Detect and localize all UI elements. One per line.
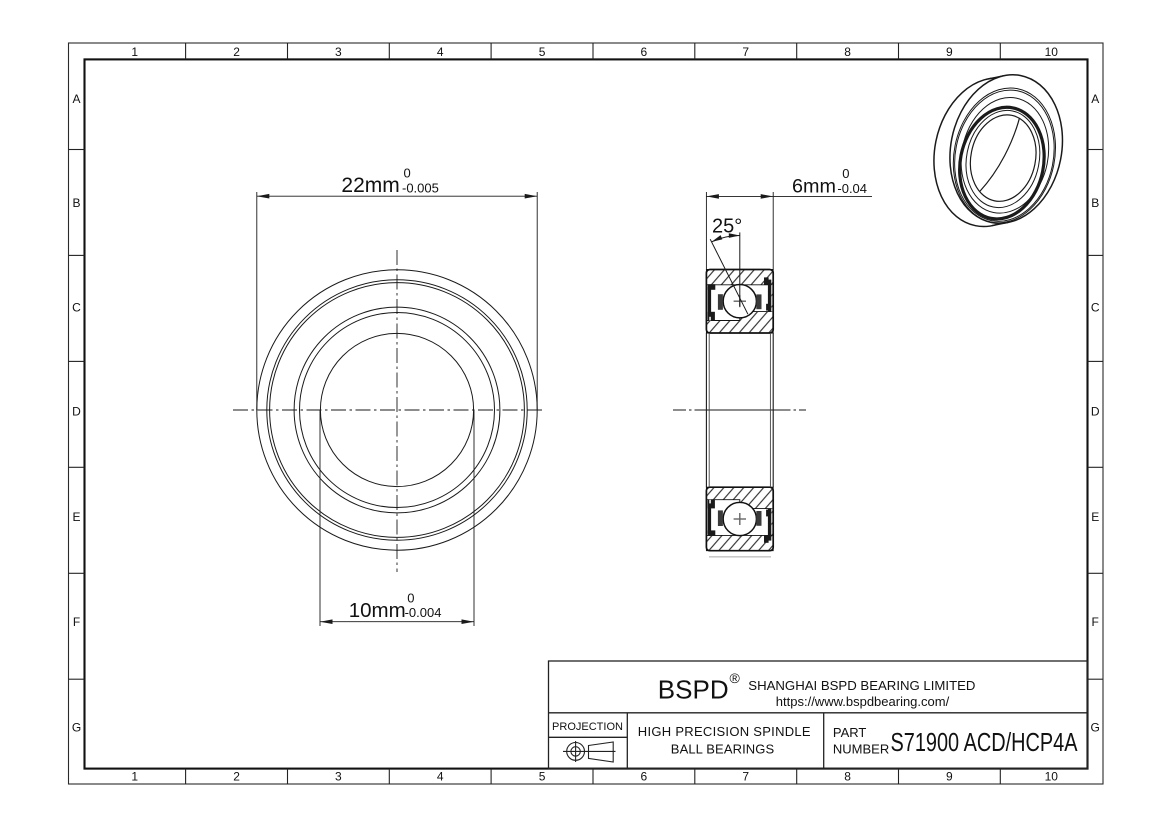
svg-text:7: 7 xyxy=(742,45,749,59)
svg-text:BSPD: BSPD xyxy=(658,675,729,705)
svg-text:9: 9 xyxy=(946,45,953,59)
svg-text:2: 2 xyxy=(233,770,240,784)
svg-text:25°: 25° xyxy=(712,216,742,238)
svg-text:NUMBER: NUMBER xyxy=(833,742,889,757)
svg-text:8: 8 xyxy=(844,770,851,784)
svg-text:SHANGHAI BSPD BEARING LIMITED: SHANGHAI BSPD BEARING LIMITED xyxy=(748,678,975,693)
svg-text:9: 9 xyxy=(946,770,953,784)
svg-text:-0.005: -0.005 xyxy=(402,181,439,196)
svg-text:C: C xyxy=(1091,300,1100,314)
svg-text:G: G xyxy=(1091,721,1100,735)
svg-text:0: 0 xyxy=(842,166,849,181)
svg-text:F: F xyxy=(73,615,80,629)
svg-text:5: 5 xyxy=(539,45,546,59)
svg-text:D: D xyxy=(1091,405,1100,419)
svg-text:https://www.bspdbearing.com/: https://www.bspdbearing.com/ xyxy=(776,694,950,709)
svg-text:8: 8 xyxy=(844,45,851,59)
svg-text:E: E xyxy=(72,510,80,524)
svg-text:S71900 ACD/HCP4A: S71900 ACD/HCP4A xyxy=(891,727,1079,757)
svg-text:4: 4 xyxy=(437,45,444,59)
svg-text:0: 0 xyxy=(407,591,414,606)
svg-text:-0.04: -0.04 xyxy=(837,181,867,196)
svg-text:1: 1 xyxy=(131,45,138,59)
svg-text:22mm: 22mm xyxy=(341,174,399,197)
svg-text:G: G xyxy=(72,721,81,735)
svg-text:0: 0 xyxy=(404,166,411,181)
svg-text:C: C xyxy=(72,300,81,314)
svg-text:10mm: 10mm xyxy=(349,599,406,622)
svg-text:6mm: 6mm xyxy=(792,176,836,198)
svg-text:F: F xyxy=(1092,615,1099,629)
svg-text:PROJECTION: PROJECTION xyxy=(552,721,623,733)
svg-text:BALL BEARINGS: BALL BEARINGS xyxy=(671,742,775,757)
svg-text:B: B xyxy=(1091,196,1099,210)
svg-text:4: 4 xyxy=(437,770,444,784)
svg-text:B: B xyxy=(72,196,80,210)
svg-text:1: 1 xyxy=(131,770,138,784)
svg-text:5: 5 xyxy=(539,770,546,784)
svg-text:6: 6 xyxy=(641,45,648,59)
svg-text:®: ® xyxy=(730,670,741,686)
svg-text:7: 7 xyxy=(742,770,749,784)
svg-text:6: 6 xyxy=(641,770,648,784)
svg-text:2: 2 xyxy=(233,45,240,59)
svg-text:A: A xyxy=(1091,92,1099,106)
svg-text:D: D xyxy=(72,405,81,419)
svg-text:PART: PART xyxy=(833,725,867,740)
svg-text:E: E xyxy=(1091,510,1099,524)
svg-text:HIGH PRECISION SPINDLE: HIGH PRECISION SPINDLE xyxy=(638,724,811,739)
svg-text:10: 10 xyxy=(1045,770,1059,784)
svg-text:10: 10 xyxy=(1045,45,1059,59)
svg-text:A: A xyxy=(72,92,80,106)
svg-text:-0.004: -0.004 xyxy=(405,605,442,620)
svg-text:3: 3 xyxy=(335,770,342,784)
svg-text:3: 3 xyxy=(335,45,342,59)
